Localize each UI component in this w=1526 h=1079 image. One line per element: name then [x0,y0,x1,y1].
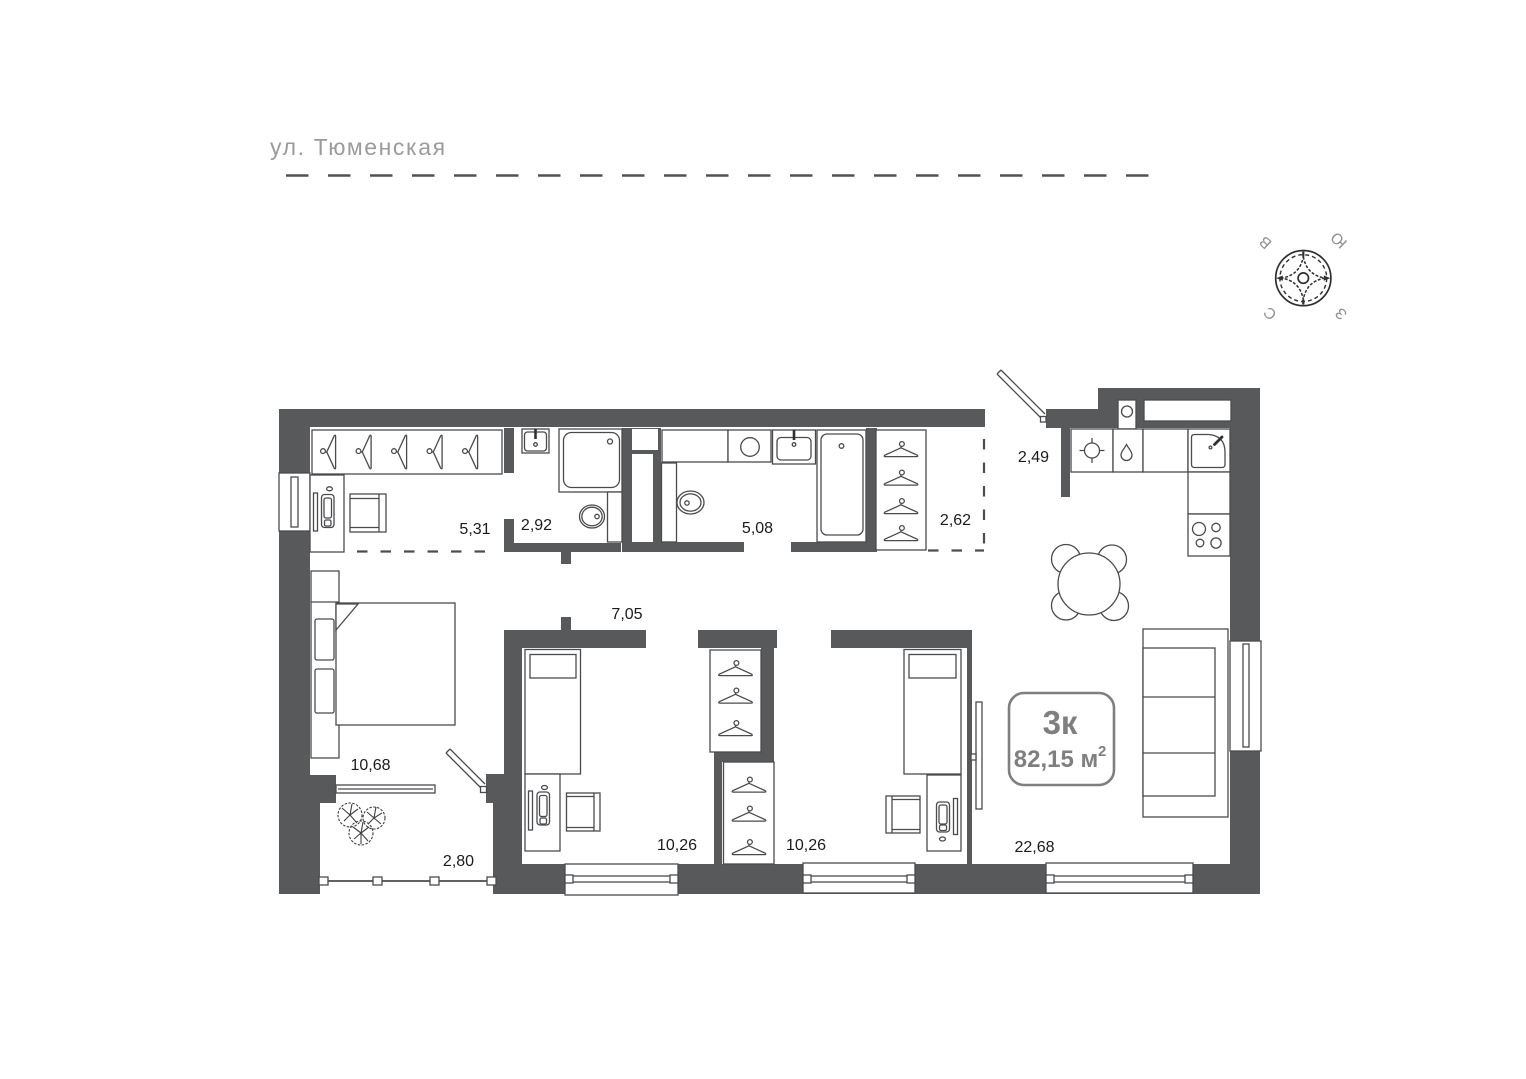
svg-text:3к: 3к [1043,704,1078,741]
svg-text:2,80: 2,80 [443,853,474,870]
svg-text:22,68: 22,68 [1014,839,1054,856]
svg-text:82,15 м: 82,15 м [1014,746,1098,773]
svg-text:2,49: 2,49 [1018,449,1049,466]
svg-text:2,62: 2,62 [940,512,971,529]
svg-text:5,31: 5,31 [459,521,490,538]
svg-text:10,26: 10,26 [657,837,697,854]
svg-text:7,05: 7,05 [611,606,642,623]
svg-text:ул. Тюменская: ул. Тюменская [270,134,447,160]
svg-text:5,08: 5,08 [742,520,773,537]
svg-text:10,26: 10,26 [786,837,826,854]
svg-text:2: 2 [1098,743,1106,760]
svg-text:10,68: 10,68 [350,757,390,774]
svg-text:2,92: 2,92 [521,517,552,534]
